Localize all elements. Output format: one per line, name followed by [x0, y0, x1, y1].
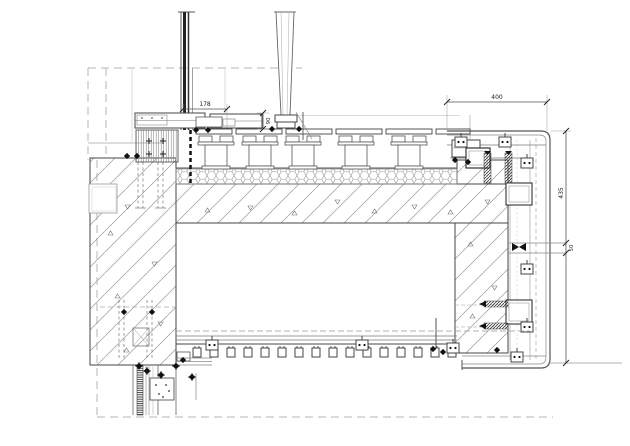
dimension-label-50: 50 — [569, 244, 575, 251]
coil-anchor-horizontal — [484, 301, 508, 307]
dimension-50: 50 — [563, 240, 575, 256]
dimension-annotations: 178 90 400 435 50 — [180, 94, 622, 366]
dimension-435: 435 — [548, 128, 622, 366]
window-head-assembly — [133, 358, 212, 415]
fixing-clip — [356, 336, 368, 350]
panel-joint-fastener — [512, 243, 526, 251]
dimension-label-435: 435 — [558, 187, 565, 199]
wall-drip-recess — [89, 184, 117, 213]
top-concrete-slab — [176, 184, 508, 223]
paver-pedestals — [198, 136, 427, 169]
right-concrete-wall — [455, 223, 508, 353]
fixing-plate — [150, 378, 174, 400]
dimension-400: 400 — [444, 94, 550, 131]
fixing-clip — [521, 154, 533, 168]
drainage-mat-layer — [176, 168, 457, 184]
thermal-break-strip — [137, 365, 143, 415]
dimension-label-178: 178 — [199, 101, 211, 108]
coil-anchor-vertical — [484, 153, 491, 183]
dimension-label-400: 400 — [491, 94, 503, 101]
coil-anchor-horizontal — [484, 323, 508, 329]
detail-section-drawing: 178 90 400 435 50 — [0, 0, 630, 446]
mullion-sill-assembly — [135, 12, 262, 186]
cad-drawing-viewport: 178 90 400 435 50 — [0, 0, 630, 446]
upper-wall-bracket — [506, 183, 532, 205]
fixing-clip — [511, 348, 523, 362]
railing-post — [274, 12, 312, 140]
fixing-clip — [521, 260, 533, 274]
timber-blocking — [136, 130, 178, 162]
terrace-pavers — [196, 129, 470, 134]
lower-wall-bracket — [506, 300, 532, 324]
dimension-label-90: 90 — [266, 117, 272, 124]
coil-anchor-vertical — [505, 153, 512, 183]
fixing-clip — [206, 336, 218, 350]
soffit-hanger-clips — [193, 346, 456, 357]
